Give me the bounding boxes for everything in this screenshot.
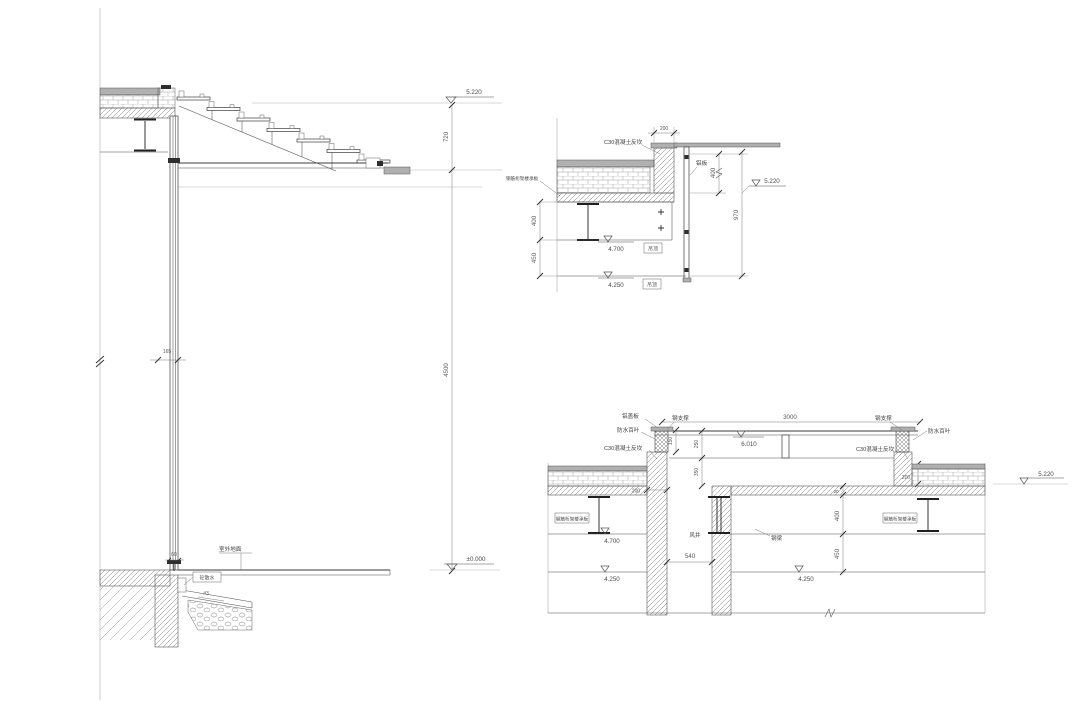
outdoor-ground-label: 室外地面 (219, 545, 242, 553)
canopy-hanger (782, 435, 789, 458)
tag-4700-text: 吊顶 (648, 247, 658, 253)
left-louver (655, 431, 668, 452)
dim-200-right-text: 200 (902, 475, 911, 481)
left-section-view: 165 720 4500 5.220 ±0.000 室外地面 60 (96, 8, 502, 700)
shaft-label: 风井 (689, 531, 701, 539)
roof-slab (100, 108, 175, 118)
dim-4500-text: 4500 (443, 363, 450, 377)
c30-left-label: C30混凝土反坎 (604, 444, 643, 452)
dim-150-text: 150 (668, 437, 674, 446)
fascia-gray-bar (384, 167, 410, 174)
parapet-cap (161, 85, 171, 89)
dim-3000-text: 3000 (783, 414, 797, 421)
soffit-member (172, 158, 410, 174)
dim-720-text: 720 (443, 131, 450, 142)
mullion-top-connection (168, 158, 180, 163)
dim-chain-right: 720 4500 (443, 102, 455, 574)
drawing-svg: 165 720 4500 5.220 ±0.000 室外地面 60 (0, 0, 1080, 717)
alum-cover-label: 铝盖板 (622, 412, 639, 420)
gravel-bed (188, 600, 252, 630)
elev-5220-right-text: 5.220 (1038, 471, 1054, 478)
adjacent-deck (674, 143, 780, 147)
left-louver-assembly (647, 427, 673, 615)
foundation-wall (155, 575, 178, 647)
steel-beam-label: 钢梁 (771, 534, 783, 542)
dim-400-left-text: 400 (531, 215, 538, 226)
elev-4700-bottom-text: 4.700 (604, 538, 620, 545)
upstand-cap (651, 143, 677, 148)
right-shaft-wall (712, 486, 731, 615)
elevation-mark-4250-bottom-left: 4.250 (601, 566, 620, 583)
dim-970-text: 970 (733, 209, 740, 220)
detail-top-right: 200 C30混凝土反坎 钢筋桁架楼承板 铝板 400 450 4.700 吊顶… (506, 118, 786, 292)
apron-curb (178, 578, 186, 592)
step-stringer (179, 106, 336, 171)
roof-buildup-right (912, 464, 985, 486)
left-shaft-wall (647, 452, 667, 615)
dim-450-left-text: 450 (531, 252, 538, 263)
dim-20-text: 20 (833, 489, 839, 494)
right-louver (896, 431, 909, 452)
concrete-upstand (654, 148, 674, 193)
deck-left-label: 钢筋桁架楼承板 (556, 516, 589, 523)
roof-screed-band (100, 88, 160, 95)
dim-200-text: 200 (660, 126, 669, 132)
elevation-mark-6010: 6.010 (733, 431, 764, 448)
deck-label: 钢筋桁架楼承板 (506, 175, 539, 182)
ground-structure: 砼散水 #3 (100, 570, 252, 647)
aluminum-fascia-panel (683, 147, 691, 282)
dim-250-text: 250 (694, 440, 700, 449)
apron-label: 砼散水 (199, 575, 214, 582)
insulation (557, 167, 650, 193)
earth-hatch (100, 586, 155, 640)
elev-5220-text: 5.220 (466, 89, 482, 96)
deck-right-label: 钢筋桁架楼承板 (884, 516, 917, 523)
elevation-mark-4250: 4.250 吊顶 (598, 272, 661, 289)
louver-right-label: 防水百叶 (928, 427, 951, 435)
slope-label: #3 (203, 591, 209, 597)
elevation-mark-4250-bottom-right: 4.250 (795, 566, 814, 583)
alum-panel-label: 铝板 (696, 159, 708, 167)
screed-band (557, 160, 654, 167)
elev-5220-detail-text: 5.220 (764, 178, 780, 185)
elev-4700-text: 4.700 (608, 246, 624, 253)
steel-brace-left-label: 钢支撑 (672, 414, 689, 422)
parapet-block (158, 88, 175, 108)
dim-60-text: 60 (171, 552, 177, 558)
interior-right-zone: 钢筋桁架楼承板 钢梁 (708, 497, 985, 572)
louver-left-label: 防水百叶 (617, 426, 640, 434)
roof-buildup-left (548, 466, 647, 486)
elevation-mark-5220-right: 5.220 (993, 471, 1068, 484)
elevation-mark-5220-detail: 5.220 (742, 178, 786, 193)
elev-4250-text: 4.250 (608, 282, 624, 289)
c30-label: C30混凝土反坎 (604, 138, 643, 146)
c30-right-label: C30混凝土反坎 (856, 445, 895, 453)
elevation-mark-zero: ±0.000 (430, 556, 500, 570)
detail-bottom-right: 3000 6.010 铝盖板 钢支撑 防水百叶 C30混凝土反坎 150 250… (548, 412, 1068, 617)
roof-slab (557, 193, 674, 202)
dim-350-text: 350 (694, 468, 700, 477)
dim-400-right-text: 400 (710, 167, 717, 178)
dim-165-text: 165 (163, 349, 172, 355)
dim-450-text: 450 (834, 548, 841, 559)
elev-4250-bottom-left-text: 4.250 (604, 576, 620, 583)
elevation-mark-5220: 5.220 (446, 89, 494, 103)
bolt-symbols (658, 209, 664, 231)
elevation-mark-4700-bottom: 4.700 (601, 528, 620, 545)
tag-4250-text: 吊顶 (647, 283, 657, 289)
roof-slab-right (731, 486, 985, 495)
dim-mullion-165: 165 (150, 349, 186, 363)
interior-left-zone: 钢筋桁架楼承板 (548, 497, 647, 572)
dim-540-text: 540 (685, 553, 696, 560)
elevation-mark-4700: 4.700 吊顶 (598, 236, 662, 253)
cad-sheet: 165 720 4500 5.220 ±0.000 室外地面 60 (0, 0, 1080, 717)
outdoor-ground: 室外地面 60 (165, 545, 390, 575)
elev-zero-text: ±0.000 (467, 556, 486, 563)
steel-brace-right-label: 钢支撑 (875, 414, 892, 422)
dim-200-wall-text: 200 (632, 489, 641, 495)
elev-6010-text: 6.010 (741, 441, 757, 448)
elev-4250-bottom-right-text: 4.250 (798, 576, 814, 583)
left-louver-cap (651, 427, 673, 431)
roof-assembly (100, 85, 175, 152)
right-louver-cap (891, 427, 915, 431)
dim-400-text: 400 (834, 510, 841, 521)
roof-insulation (100, 95, 158, 108)
curtain-wall-mullion (167, 116, 181, 571)
